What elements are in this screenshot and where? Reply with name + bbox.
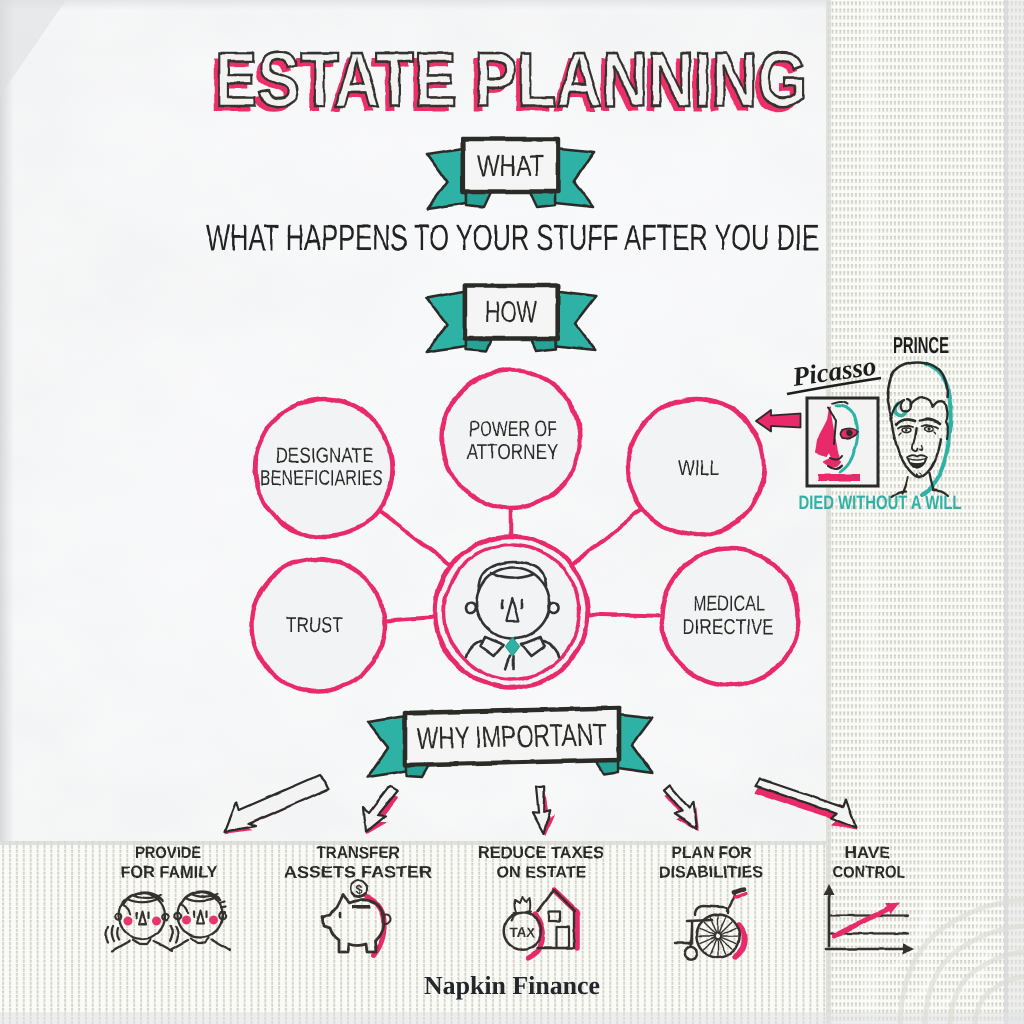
svg-text:PRINCE: PRINCE bbox=[893, 332, 949, 358]
svg-text:FOR FAMILY: FOR FAMILY bbox=[121, 864, 218, 882]
svg-text:WILL: WILL bbox=[678, 456, 719, 480]
svg-text:BENEFICIARIES: BENEFICIARIES bbox=[260, 466, 383, 490]
svg-text:MEDICAL: MEDICAL bbox=[693, 592, 765, 616]
svg-text:HOW: HOW bbox=[485, 296, 537, 329]
svg-text:DESIGNATE: DESIGNATE bbox=[276, 444, 374, 468]
svg-text:DIED WITHOUT A WILL: DIED WITHOUT A WILL bbox=[799, 492, 962, 514]
svg-text:$: $ bbox=[356, 883, 363, 897]
svg-text:TAX: TAX bbox=[510, 925, 536, 940]
svg-text:TRANSFER: TRANSFER bbox=[317, 844, 400, 862]
svg-text:ATTORNEY: ATTORNEY bbox=[467, 440, 559, 464]
svg-text:Napkin Finance: Napkin Finance bbox=[424, 971, 600, 1000]
svg-text:PROVIDE: PROVIDE bbox=[135, 844, 201, 862]
svg-text:DISABILITIES: DISABILITIES bbox=[659, 864, 763, 882]
svg-text:WHAT: WHAT bbox=[478, 150, 544, 183]
svg-text:TRUST: TRUST bbox=[286, 613, 343, 637]
svg-text:WHY IMPORTANT: WHY IMPORTANT bbox=[417, 717, 608, 756]
svg-text:PLAN FOR: PLAN FOR bbox=[672, 844, 752, 862]
svg-text:WHAT HAPPENS TO YOUR STUFF AFT: WHAT HAPPENS TO YOUR STUFF AFTER YOU DIE bbox=[206, 217, 819, 258]
svg-text:CONTROL: CONTROL bbox=[833, 864, 906, 882]
svg-text:ESTATE PLANNING: ESTATE PLANNING bbox=[215, 37, 807, 123]
svg-text:POWER OF: POWER OF bbox=[469, 417, 557, 441]
svg-text:ASSETS FASTER: ASSETS FASTER bbox=[284, 864, 432, 882]
svg-text:HAVE: HAVE bbox=[845, 844, 890, 862]
svg-text:DIRECTIVE: DIRECTIVE bbox=[683, 615, 774, 639]
svg-text:REDUCE TAXES: REDUCE TAXES bbox=[478, 844, 604, 862]
svg-text:ON ESTATE: ON ESTATE bbox=[497, 864, 587, 882]
